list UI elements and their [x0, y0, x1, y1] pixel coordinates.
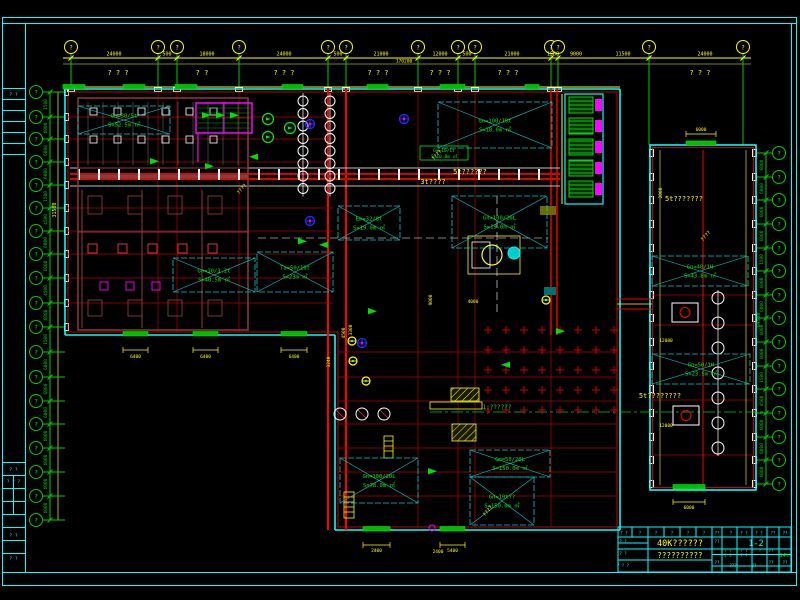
pump-yellow-icon	[362, 377, 370, 385]
grid-plus-mark	[574, 326, 582, 334]
door-dim-value: 2400	[371, 548, 382, 554]
grid-bubble-label: ?	[777, 364, 781, 371]
door	[193, 332, 218, 337]
conveyor-tick	[498, 169, 500, 180]
dim-value: 1500	[43, 99, 49, 110]
dim-value: 1500	[43, 191, 49, 202]
grid-plus-mark	[574, 406, 582, 414]
dim-value: 6000	[759, 277, 765, 288]
door	[673, 485, 705, 490]
dim-value: 6000	[43, 407, 49, 418]
titleblock-header-cell: ?	[655, 531, 658, 536]
conveyor-tick	[338, 169, 340, 180]
dim-value: 6000	[759, 419, 765, 430]
equipment-box	[118, 244, 127, 253]
annotation: ????	[700, 230, 712, 243]
equipment-box	[186, 136, 193, 143]
grid-bubble-label: ?	[741, 45, 745, 52]
grid-bubble-label: ?	[777, 411, 781, 418]
dim-value: 6000	[43, 260, 49, 271]
annotation: ????	[236, 183, 248, 196]
grid-bubble-label: ?	[326, 45, 330, 52]
axis-annotation: ? ? ?	[689, 69, 710, 77]
grid-bubble-label: ?	[473, 45, 477, 52]
large-pump-impeller	[508, 247, 520, 259]
grid-plus-mark	[520, 386, 528, 394]
equipment-box	[100, 282, 108, 290]
titleblock-cell: ??	[769, 560, 774, 565]
pump-blue-icon	[400, 115, 409, 124]
titleblock-cell: ??	[769, 548, 774, 553]
dim-value: 21000	[504, 52, 519, 58]
titleblock-header-cell: ?	[687, 531, 690, 536]
dim-value: 6000	[759, 183, 765, 194]
door	[123, 332, 148, 337]
grid-bubble-label: ?	[34, 518, 38, 525]
room-label: S=19.0m ㎡	[353, 224, 385, 232]
grid-plus-mark	[538, 366, 546, 374]
grid-bubble-label: ?	[34, 375, 38, 382]
annotation: 3240	[326, 356, 332, 367]
cad-drawing-canvas: ? ?? ?? ? ?? ?? ? ?????????????240005001…	[0, 0, 800, 600]
conveyor-tick	[118, 169, 120, 180]
olive-cabinet	[540, 206, 556, 215]
equipment-box	[168, 300, 182, 316]
grid-plus-mark	[574, 366, 582, 374]
annotation: 4000	[468, 299, 479, 305]
room-label: Gn=100/20L	[483, 216, 517, 222]
titleblock-cell: ? ?	[619, 551, 627, 556]
titleblock-header-cell: ? ?	[620, 531, 628, 536]
dim-value: 24000	[276, 52, 291, 58]
tank-green-icon	[285, 123, 296, 134]
teal-cabinet	[544, 287, 556, 295]
room-label: S=43.8m ㎡	[684, 272, 716, 280]
annotation: 5t??????	[453, 168, 487, 176]
room-label: S=78.0m ㎡	[363, 481, 395, 489]
grid-bubble-label: ?	[777, 269, 781, 276]
titleblock-header-cell: ??	[771, 531, 776, 536]
titleblock-cell: ??	[783, 560, 788, 565]
titleblock-drawing-title: 40K??????	[657, 539, 703, 549]
wall-main-outline	[65, 89, 620, 530]
dim-total-value: 64500	[756, 312, 762, 327]
conveyor-tick	[98, 169, 100, 180]
grid-plus-mark	[484, 366, 492, 374]
room-label: Em=32/8t	[356, 217, 383, 223]
grid-bubble-label: ?	[34, 160, 38, 167]
dim-value: 6000	[43, 359, 49, 370]
dim-value: 11500	[615, 52, 630, 58]
building-walls	[65, 87, 756, 530]
dim-value: 6000	[759, 301, 765, 312]
door-dim-value: 6000	[696, 127, 707, 133]
grid-bubble-label: ?	[34, 446, 38, 453]
grid-plus-mark	[556, 406, 564, 414]
pump-blue-icon	[358, 339, 367, 348]
grid-bubble-label: ?	[777, 458, 781, 465]
room-label: S=23m ㎡	[282, 273, 308, 281]
conveyor-tick	[398, 169, 400, 180]
equipment-box	[90, 136, 97, 143]
grid-bubble-label: ?	[777, 246, 781, 253]
frame-strip-cell: ? ?	[9, 556, 17, 562]
grid-bubble-label: ?	[34, 183, 38, 190]
annotation: 5t????????	[639, 392, 681, 400]
dim-value: 6000	[43, 168, 49, 179]
room-label: Gn=100/20L	[362, 474, 396, 480]
titleblock-header-cell: ?	[703, 531, 706, 536]
flow-arrow-icon	[249, 154, 258, 160]
titleblock-header-cell: ?	[671, 531, 674, 536]
axis-annotation: ? ? ?	[107, 69, 128, 77]
conveyor-tick	[358, 169, 360, 180]
door	[175, 85, 197, 90]
hatched-equipment-1	[451, 388, 479, 401]
conveyor-tick	[238, 169, 240, 180]
conveyor-tick	[278, 169, 280, 180]
pump-blue-icon	[306, 217, 315, 226]
titleblock-header-cell: ??	[715, 531, 720, 536]
room-label: S=52.5m ㎡	[108, 121, 140, 129]
conveyor-tick	[158, 169, 160, 180]
staircase	[196, 103, 252, 162]
conveyor-tick	[138, 169, 140, 180]
titleblock-sheet-number: 1-2	[748, 539, 763, 549]
titleblock-cell: ??	[715, 539, 720, 544]
grid-plus-mark	[592, 346, 600, 354]
door	[367, 85, 388, 90]
dim-value: 12000	[432, 52, 447, 58]
room-label: S=18.0m ㎡	[479, 126, 511, 134]
door	[363, 527, 390, 532]
annotation: 12000	[659, 338, 673, 344]
dim-value: 1500	[43, 334, 49, 345]
room-label: Gn=30/5t	[111, 114, 138, 120]
dim-value: 6000	[759, 466, 765, 477]
conveyor-tick	[258, 169, 260, 180]
grid-bubble-label: ?	[777, 340, 781, 347]
door	[525, 85, 539, 90]
grid-bubble-label: ?	[34, 90, 38, 97]
grid-bubble-label: ?	[777, 175, 781, 182]
dim-value: 500	[162, 52, 171, 58]
room-label: Ta=50/10t	[280, 266, 310, 272]
titleblock-cell: ??	[752, 563, 757, 568]
grid-bubble-label: ?	[34, 350, 38, 357]
grid-bubble-label: ?	[34, 494, 38, 501]
grid-bubble-label: ?	[34, 115, 38, 122]
dim-value: 6000	[43, 478, 49, 489]
grid-bubble-label: ?	[34, 276, 38, 283]
valve-row	[334, 408, 390, 420]
grid-bubble-label: ?	[777, 387, 781, 394]
grid-plus-mark	[520, 326, 528, 334]
equipment-box	[114, 136, 121, 143]
equipment-box	[128, 196, 142, 214]
ladder-2	[384, 436, 393, 458]
door-dim-value: 6400	[200, 354, 211, 360]
equipment-box	[126, 282, 134, 290]
grid-bubble-label: ?	[34, 206, 38, 213]
pump-and-arrow-symbols	[150, 112, 565, 474]
grid-bubble-label: ?	[69, 45, 73, 52]
flow-arrow-icon	[298, 238, 307, 244]
grid-bubble-label: ?	[777, 222, 781, 229]
titleblock-cell: ? ?	[740, 553, 748, 558]
door	[63, 85, 85, 90]
dim-value: 6000	[43, 309, 49, 320]
equipment-box	[168, 196, 182, 214]
grid-plus-mark	[520, 346, 528, 354]
grid-plus-mark	[484, 326, 492, 334]
dim-value: 1500	[759, 372, 765, 383]
room-label: Gn=10/3.2t	[197, 269, 230, 275]
flow-arrow-icon	[319, 242, 328, 248]
equipment-box	[210, 108, 217, 115]
dim-value: 4500	[759, 395, 765, 406]
grid-bubble-label: ?	[777, 198, 781, 205]
grid-plus-mark	[574, 346, 582, 354]
conveyor-tick	[518, 169, 520, 180]
titleblock-cell: 2 3	[724, 553, 732, 558]
grid-plus-mark	[592, 386, 600, 394]
dim-value: 4500	[43, 285, 49, 296]
annotation: 5t???????	[665, 195, 703, 203]
equipment-box	[186, 108, 193, 115]
titleblock-cell: ??	[715, 560, 720, 565]
grid-bubble-label: ?	[34, 422, 38, 429]
dim-value: 18000	[199, 52, 214, 58]
dim-value: 6000	[43, 502, 49, 513]
annotation: 3300	[348, 324, 354, 335]
room-label: Gn=10t??	[489, 495, 516, 501]
door	[281, 332, 307, 337]
grid-bubble-label: ?	[34, 301, 38, 308]
top-dimension-axis: ?????????????240005001800024000500210001…	[63, 41, 751, 146]
door	[440, 85, 465, 90]
axis-annotation: ? ? ?	[367, 69, 388, 77]
grid-plus-mark	[556, 386, 564, 394]
dim-value: 6000	[43, 454, 49, 465]
grid-plus-mark	[484, 346, 492, 354]
door	[123, 85, 145, 90]
grid-bubble-label: ?	[777, 482, 781, 489]
axis-annotation: ? ? ?	[429, 69, 450, 77]
pump-yellow-icon	[349, 357, 357, 365]
dim-value: 6000	[43, 237, 49, 248]
flow-arrow-icon	[428, 468, 437, 474]
door-dim-value: 6000	[684, 505, 695, 511]
crane-trolley-1	[672, 303, 698, 322]
grid-plus-mark	[538, 326, 546, 334]
titleblock-header-cell: ??	[783, 531, 788, 536]
grid-bubble-label: ?	[647, 45, 651, 52]
frame-strip-cell: ? ? ?	[7, 479, 21, 485]
grid-plus-mark	[592, 326, 600, 334]
grid-bubble-label: ?	[777, 435, 781, 442]
expansion-joint-1	[328, 88, 346, 530]
axis-annotation: ? ? ?	[273, 69, 294, 77]
equipment-box	[138, 136, 145, 143]
titleblock-cell: ? ?	[619, 539, 627, 544]
grid-bubble-label: ?	[34, 325, 38, 332]
grid-plus-mark	[502, 346, 510, 354]
grid-bubble-label: ?	[777, 293, 781, 300]
dim-value: 500	[462, 52, 471, 58]
grid-bubble-label: ?	[237, 45, 241, 52]
dim-value: 6000	[43, 430, 49, 441]
grid-plus-mark	[502, 386, 510, 394]
pump-yellow-icon	[348, 337, 356, 345]
grid-bubble-label: ?	[777, 316, 781, 323]
annotation: 3t????	[420, 178, 445, 186]
dim-value: 24000	[697, 52, 712, 58]
room-label: S=40.5m ㎡	[198, 276, 230, 284]
door	[440, 527, 465, 532]
titleblock-cell: ? ? ?	[617, 563, 630, 568]
tank-green-icon	[263, 114, 274, 125]
grid-bubble-label: ?	[777, 151, 781, 158]
grid-plus-mark	[520, 406, 528, 414]
titleblock-header-cell: ? ?	[755, 531, 763, 536]
room-label: S=23.5m ㎡	[685, 370, 717, 378]
dim-value: 21000	[373, 52, 388, 58]
annotation: 2400	[433, 549, 444, 555]
equipment-box	[88, 244, 97, 253]
annotation: 9000	[428, 294, 434, 305]
left-dimension-axis: ?1500?6000?6000?6000?1500?4500?6000?6000…	[30, 86, 69, 527]
door-dim-value: 5400	[447, 548, 458, 554]
grid-bubble-label: ?	[34, 399, 38, 406]
dim-value: 6000	[759, 206, 765, 217]
grid-plus-mark	[502, 326, 510, 334]
sheet-frame	[3, 18, 797, 586]
room-label: S=150.0m ㎡	[492, 464, 528, 472]
conveyor-tick	[318, 169, 320, 180]
dim-value: 6000	[759, 230, 765, 241]
equipment-box	[88, 300, 102, 316]
dim-value: 24000	[106, 52, 121, 58]
grid-plus-mark	[484, 386, 492, 394]
grid-bubble-label: ?	[556, 45, 560, 52]
door	[282, 85, 303, 90]
flow-arrow-icon	[368, 308, 377, 314]
grid-bubble-label: ?	[344, 45, 348, 52]
dim-value: 6000	[759, 443, 765, 454]
annotation: 4500	[341, 327, 347, 338]
dim-value: 500	[333, 52, 342, 58]
hatched-equipment-2	[452, 424, 476, 441]
equipment-bar	[430, 402, 482, 409]
conveyor-tick	[538, 169, 540, 180]
dim-value: 9000	[570, 52, 582, 58]
frame-strip-cell: ? ?	[9, 533, 17, 539]
equipment-box	[210, 136, 217, 143]
titleblock-header-cell: ?	[639, 531, 642, 536]
equipment-block-dividers	[78, 168, 248, 328]
grid-bubble-label: ?	[34, 137, 38, 144]
dim-value: 6000	[43, 383, 49, 394]
conveyor-tick	[378, 169, 380, 180]
wall-main-inner	[68, 92, 617, 527]
grid-bubble-label: ?	[34, 252, 38, 259]
grid-bubble-label: ?	[156, 45, 160, 52]
dim-value: 1500	[547, 52, 559, 58]
dim-value: 4500	[43, 214, 49, 225]
equipment-box	[88, 196, 102, 214]
dim-total-value: 170200	[396, 59, 413, 65]
titleblock-scale: 14%	[779, 553, 788, 559]
equipment-box	[208, 196, 222, 214]
grid-bubble-label: ?	[175, 45, 179, 52]
room-label: Gn=100/10t	[478, 119, 511, 125]
room-label: Gn=40/1H	[687, 265, 714, 271]
grid-plus-mark	[538, 406, 546, 414]
tank-cells	[569, 97, 602, 197]
dim-value: 6000	[43, 122, 49, 133]
dim-value: 6000	[43, 145, 49, 156]
room-label: Gm=50/20L	[495, 457, 525, 463]
equipment-box	[208, 300, 222, 316]
grid-bubble-label: ?	[416, 45, 420, 52]
grid-plus-mark	[538, 386, 546, 394]
tank-green-icon	[263, 132, 274, 143]
pump-blue-icon	[306, 120, 315, 129]
tank-bank	[562, 94, 603, 204]
annotation-labels: 3t????5t??????5t???????5t????????1:?????…	[236, 148, 712, 555]
dim-value: 6000	[759, 159, 765, 170]
annotation: 1:??????	[483, 404, 512, 411]
annotation: 12000	[659, 423, 673, 429]
conveyor-tick	[178, 169, 180, 180]
pump-yellow-icon	[542, 296, 550, 304]
grid-plus-mark	[592, 366, 600, 374]
grid-bubble-label: ?	[34, 470, 38, 477]
dim-value: 6000	[759, 348, 765, 359]
frame-strip-cell: ? ?	[9, 467, 17, 473]
frame-strip-cell: ? ?	[9, 92, 17, 98]
equipment-box	[178, 244, 187, 253]
conveyor-tick	[198, 169, 200, 180]
equipment-box	[208, 244, 217, 253]
dim-value: 1500	[759, 254, 765, 265]
axis-annotation: ? ?	[196, 69, 209, 77]
conveyor-tick	[218, 169, 220, 180]
title-block: 40K?????? 1-2 ?????????? 14% ? ?????????…	[617, 527, 791, 572]
door-dim-value: 6400	[130, 354, 141, 360]
room-label: Gn=50/1H	[688, 363, 715, 369]
grid-plus-mark	[538, 346, 546, 354]
equipment-box	[148, 244, 157, 253]
frame-outer-border	[3, 18, 797, 586]
equipment-box	[128, 300, 142, 316]
titleblock-header-cell: ? ?	[740, 531, 748, 536]
titleblock-project-name: ??????????	[657, 551, 702, 560]
titleblock-cell: ???	[729, 563, 737, 568]
grid-verticals-wing	[418, 332, 551, 527]
grid-plus-mark	[592, 406, 600, 414]
annotation: 2000	[658, 187, 664, 198]
grid-plus-mark	[574, 386, 582, 394]
cad-sheet: ? ?? ?? ? ?? ?? ? ?????????????240005001…	[0, 0, 800, 600]
titleblock-header-cell: ?	[730, 531, 733, 536]
crane-trolley-2	[673, 406, 699, 425]
grid-plus-mark	[556, 346, 564, 354]
equipment-box	[152, 282, 160, 290]
door	[686, 141, 716, 146]
grid-plus-mark	[520, 366, 528, 374]
